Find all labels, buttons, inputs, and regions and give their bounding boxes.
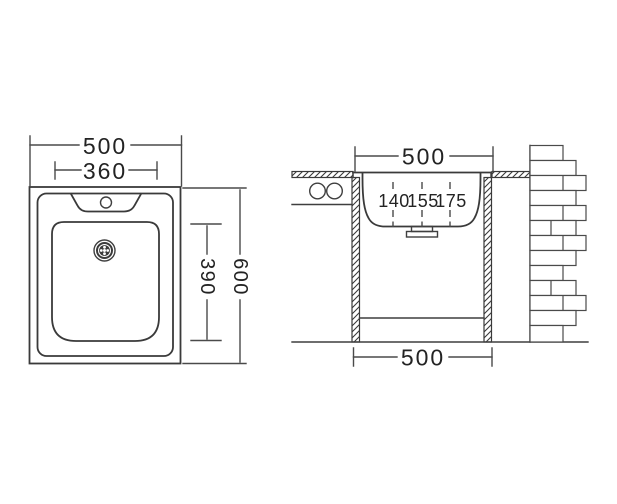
dim-bowl-depth: 390: [191, 224, 221, 341]
brick: [530, 311, 576, 326]
top-view: 500 360 390 600: [30, 133, 252, 364]
brick: [530, 326, 563, 343]
drain-hole: [103, 252, 106, 255]
dim-base-width-label: 500: [401, 345, 445, 371]
cabinet-side-right: [484, 178, 492, 343]
brick: [530, 206, 586, 221]
sink-technical-drawing: 500 360 390 600: [0, 0, 617, 504]
brick: [530, 236, 586, 251]
brick: [530, 221, 576, 236]
dim-bowl-width: 360: [55, 158, 157, 184]
brick: [530, 281, 576, 296]
edge-profile-circle: [310, 183, 326, 199]
drain: [94, 240, 115, 261]
drawing-svg: 500 360 390 600: [0, 0, 617, 504]
countertop-right: [492, 172, 530, 178]
brick: [530, 146, 563, 161]
drain-hole: [103, 249, 106, 252]
brick: [530, 161, 576, 176]
dim-bowl-width-label: 360: [83, 158, 127, 184]
depth-label-140: 140: [378, 191, 410, 211]
faucet-hole: [101, 197, 112, 208]
section-view: 140 155 175 500 500: [292, 144, 588, 371]
dim-overall-width-label: 500: [83, 133, 127, 159]
countertop-left: [292, 172, 353, 178]
edge-profile-circle: [327, 183, 343, 199]
sink-rim: [38, 194, 174, 357]
brick: [530, 191, 576, 206]
dim-bowl-depth-label: 390: [196, 258, 218, 296]
dim-rim-width-label: 500: [402, 144, 446, 170]
cabinet-side-left: [352, 178, 360, 343]
brick: [530, 176, 586, 191]
depth-label-175: 175: [435, 191, 467, 211]
drain-hole: [103, 246, 106, 249]
depth-label-155: 155: [407, 191, 439, 211]
drain-hole: [100, 249, 103, 252]
brick: [530, 296, 586, 311]
brick-wall: [530, 146, 586, 343]
drain-hole: [106, 249, 109, 252]
dim-base-width: 500: [354, 345, 493, 371]
brick: [530, 266, 563, 281]
dim-rim-width: 500: [355, 144, 493, 172]
dim-overall-depth-label: 600: [229, 258, 251, 296]
depth-options: 140 155 175: [378, 182, 467, 227]
drain-flange: [407, 232, 438, 238]
brick: [530, 251, 576, 266]
